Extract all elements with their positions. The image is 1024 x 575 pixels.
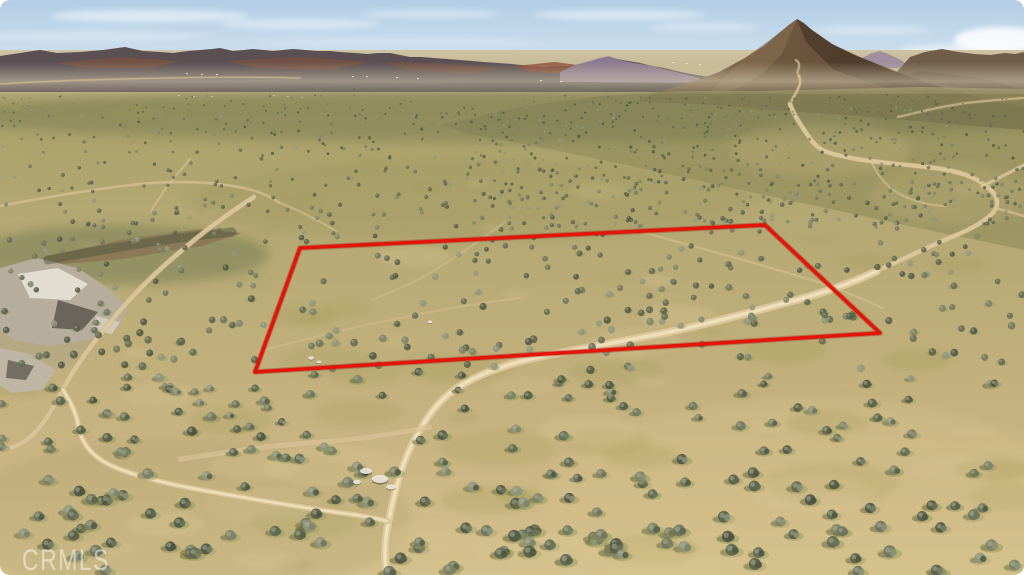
photo-canvas: CRMLS: [0, 0, 1024, 575]
aerial-photo: CRMLS: [0, 0, 1024, 575]
crmls-watermark: CRMLS: [22, 544, 110, 575]
